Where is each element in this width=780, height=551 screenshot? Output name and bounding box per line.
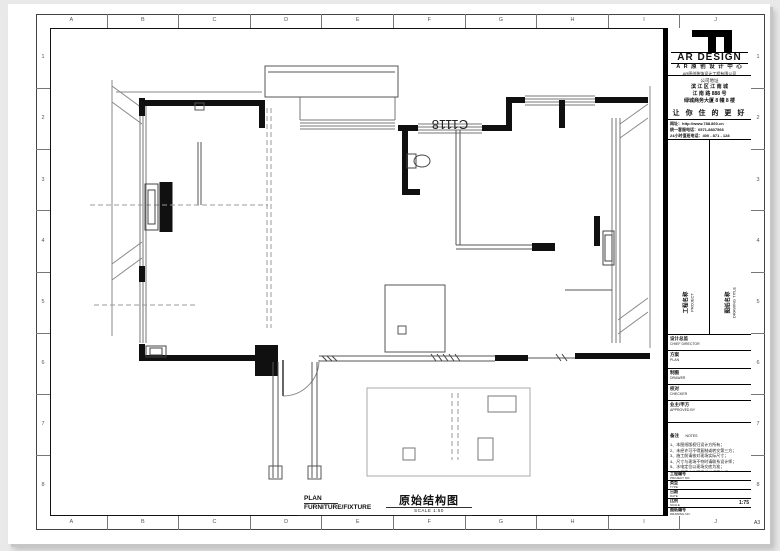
- row-scale: 比例SCALE 1:75: [668, 498, 751, 507]
- drawing-caption: PLAN FURNITURE/FIXTURE 原始结构图 SCALE 1:50: [298, 495, 472, 516]
- grid-number-8: 8: [36, 455, 50, 516]
- grid-letter-H: H: [536, 516, 608, 530]
- window-lines: [140, 96, 620, 343]
- grid-letter-E: E: [321, 14, 393, 28]
- grid-letter-A: A: [36, 14, 107, 28]
- brand-subtitle: A R 原 创 设 计 中 心: [668, 64, 751, 71]
- drawing-label-en: DRAWING TITLE: [731, 287, 736, 318]
- grid-number-1: 1: [751, 28, 765, 88]
- grid-number-8: 8: [751, 455, 765, 516]
- project-name-cell: 工程名称 PROJECT: [668, 140, 709, 334]
- grid-number-3: 3: [751, 149, 765, 210]
- ruler-top: ABCDEFGHIJ: [36, 14, 751, 28]
- grid-letter-G: G: [465, 14, 537, 28]
- drawing-title-cell: 图纸名称 DRAWING TITLE: [709, 140, 751, 334]
- grid-number-4: 4: [751, 210, 765, 271]
- grid-letter-F: F: [393, 516, 465, 530]
- row-label-en: CHECKER: [670, 392, 749, 397]
- row-label-en: CHIEF DIRECTOR: [670, 342, 749, 347]
- grid-letter-A: A: [36, 516, 107, 530]
- paper-size-label: A3: [754, 520, 760, 526]
- project-label-cn: 工程名称: [683, 291, 689, 313]
- entry-door: [283, 360, 319, 396]
- grid-letter-I: I: [608, 14, 680, 28]
- project-drawing-columns: 工程名称 PROJECT 图纸名称 DRAWING TITLE: [668, 139, 751, 334]
- entry-jamb-wall: [255, 345, 278, 376]
- brand-logo-section: AR DESIGN A R 原 创 设 计 中 心 AR原创装饰设计工程有限公司: [668, 28, 751, 76]
- company-address-section: 公司地址 滨 江 区 江 南 城 江 南 路 888 号 绿城商务大厦 8 幢 …: [668, 76, 751, 108]
- window-tag-label: C1118: [432, 117, 468, 132]
- grid-letter-I: I: [608, 516, 680, 530]
- address-line: 绿城商务大厦 8 幢 8 楼: [668, 98, 751, 105]
- drawing-sheet: ABCDEFGHIJ ABCDEFGHIJ 12345678 12345678: [8, 4, 770, 544]
- wardrobe: [385, 285, 445, 352]
- ar-design-logo-icon: [688, 30, 732, 52]
- field-value-scale: 1:75: [739, 500, 749, 506]
- grid-number-6: 6: [751, 333, 765, 394]
- grid-number-2: 2: [751, 88, 765, 149]
- grid-letter-C: C: [178, 14, 250, 28]
- grid-number-3: 3: [36, 149, 50, 210]
- grid-letter-D: D: [250, 14, 322, 28]
- row-drawer: 制图 DRAWER: [668, 368, 751, 384]
- grid-letter-J: J: [679, 14, 751, 28]
- bay-window: [265, 66, 398, 97]
- notes-section: 备注 NOTES 1、本图纸版权归设计方所有；2、未经许可不得复制或转交第三方；…: [668, 422, 751, 471]
- notes-label-cn: 备注: [670, 433, 679, 438]
- grid-letter-F: F: [393, 14, 465, 28]
- caption-title-cn: 原始结构图: [386, 495, 472, 508]
- row-label-en: DRAWER: [670, 376, 749, 381]
- contact-section: 网址：http://www.788.860.cn 统一客服电话：0571-883…: [668, 119, 751, 139]
- grid-letter-E: E: [321, 516, 393, 530]
- grid-number-7: 7: [36, 394, 50, 455]
- grid-letter-B: B: [107, 14, 179, 28]
- grid-number-7: 7: [751, 394, 765, 455]
- ruler-bottom: ABCDEFGHIJ: [36, 516, 751, 530]
- grid-letter-B: B: [107, 516, 179, 530]
- grid-letter-H: H: [536, 14, 608, 28]
- row-checker: 校对 CHECKER: [668, 384, 751, 400]
- grid-number-4: 4: [36, 210, 50, 271]
- grid-number-6: 6: [36, 333, 50, 394]
- public-corridor: [367, 388, 530, 476]
- grid-letter-J: J: [679, 516, 751, 530]
- caption-furniture: FURNITURE/FIXTURE: [304, 504, 386, 512]
- row-drawing-no: 图纸编号DRAWING NO.: [668, 507, 751, 516]
- ruler-right: 12345678: [751, 28, 765, 516]
- grid-number-2: 2: [36, 88, 50, 149]
- caption-plan: PLAN: [304, 495, 338, 504]
- row-owner: 业主/甲方 APPROVED BY: [668, 400, 751, 422]
- grid-letter-D: D: [250, 516, 322, 530]
- field-label-en: DRAWING NO.: [670, 513, 691, 517]
- caption-scale: SCALE 1:50: [386, 508, 472, 514]
- structural-walls: [142, 98, 650, 361]
- grid-letter-G: G: [465, 516, 537, 530]
- notes-label-en: NOTES: [685, 434, 697, 438]
- floor-plan-svg: C1118: [50, 28, 663, 516]
- project-label-en: PROJECT: [689, 291, 694, 313]
- row-project-no: 工程编号PROJECT NO.: [668, 471, 751, 480]
- row-type: 类型TYPE: [668, 480, 751, 489]
- brand-name: AR DESIGN: [671, 52, 748, 64]
- grid-number-5: 5: [36, 272, 50, 333]
- row-chief-director: 设计总监 CHIEF DIRECTOR: [668, 334, 751, 350]
- ruler-left: 12345678: [36, 28, 50, 516]
- toilet-fixture: [407, 154, 430, 168]
- company-slogan: 让 你 住 的 更 好: [668, 108, 751, 119]
- drawing-label-cn: 图纸名称: [725, 287, 731, 318]
- row-label-en: APPROVED BY: [670, 408, 749, 413]
- grid-letter-C: C: [178, 516, 250, 530]
- grid-number-5: 5: [751, 272, 765, 333]
- grid-number-1: 1: [36, 28, 50, 88]
- row-label-en: PLAN: [670, 358, 749, 363]
- row-plan: 方案 PLAN: [668, 350, 751, 368]
- address-line: 江 南 路 888 号: [668, 91, 751, 98]
- cad-floorplan-page: { "frame": { "grid_letters": ["A","B","C…: [0, 0, 780, 551]
- radiators: [145, 184, 614, 357]
- title-block: AR DESIGN A R 原 创 设 计 中 心 AR原创装饰设计工程有限公司…: [663, 28, 751, 516]
- row-date: 日期DATE: [668, 489, 751, 498]
- address-line: 滨 江 区 江 南 城: [668, 84, 751, 91]
